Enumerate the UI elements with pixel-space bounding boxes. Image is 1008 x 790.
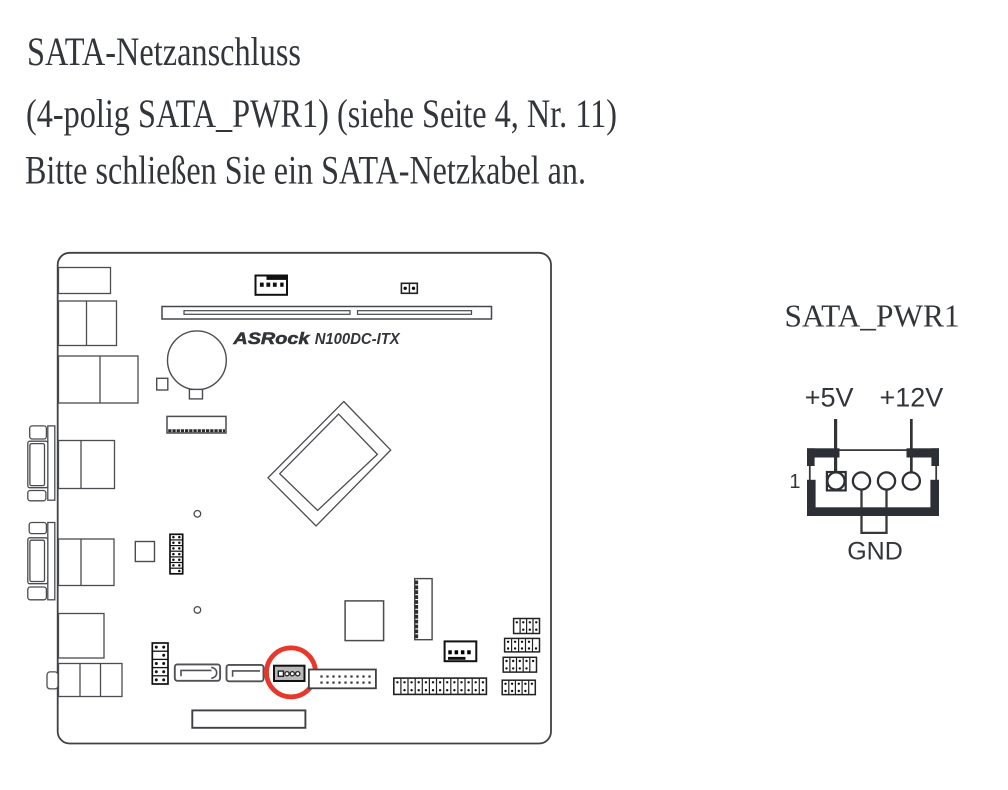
svg-text:+5V: +5V bbox=[805, 383, 854, 413]
svg-text:GND: GND bbox=[847, 537, 903, 565]
svg-text:N100DC-ITX: N100DC-ITX bbox=[315, 331, 401, 348]
svg-text:ASRock: ASRock bbox=[232, 329, 311, 348]
svg-text:+12V: +12V bbox=[879, 383, 943, 413]
svg-text:SATA_PWR1: SATA_PWR1 bbox=[785, 299, 960, 334]
svg-text:(4-polig SATA_PWR1) (siehe Sei: (4-polig SATA_PWR1) (siehe Seite 4, Nr. … bbox=[26, 91, 617, 136]
svg-text:Bitte schließen Sie ein SATA-N: Bitte schließen Sie ein SATA-Netzkabel a… bbox=[25, 148, 586, 193]
svg-text:1: 1 bbox=[789, 471, 800, 493]
svg-text:SATA-Netzanschluss: SATA-Netzanschluss bbox=[27, 29, 301, 74]
